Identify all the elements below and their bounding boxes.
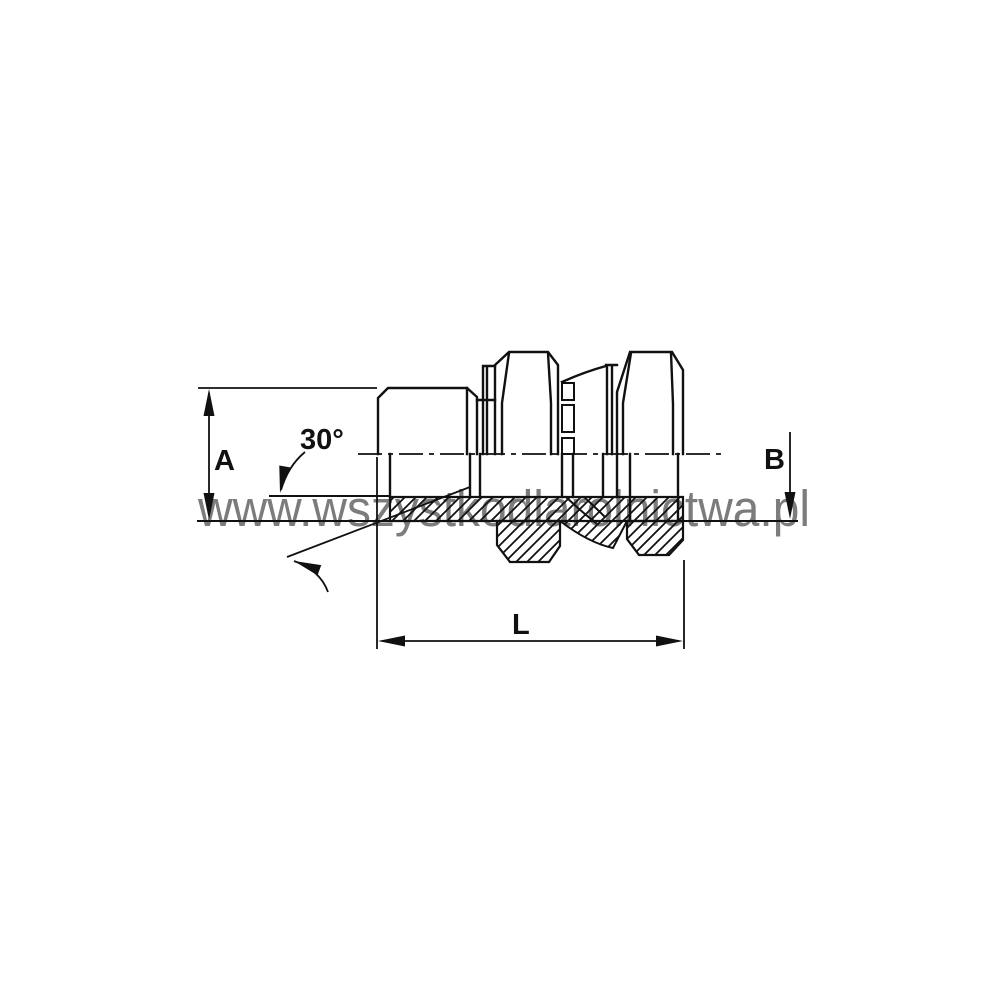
label-angle: 30° bbox=[300, 424, 344, 456]
hex-facet-left bbox=[502, 353, 509, 454]
thread-crest-rects bbox=[562, 383, 574, 454]
swivel-nut-section bbox=[627, 521, 683, 555]
thread-rect bbox=[562, 438, 574, 454]
fitting-technical-drawing: www.wszystkodlarolnictwa.pl bbox=[0, 0, 1000, 1000]
fitting-outline bbox=[378, 352, 683, 454]
label-b: B bbox=[764, 444, 785, 476]
label-l: L bbox=[512, 609, 530, 641]
arrowhead-arc bbox=[292, 556, 321, 576]
arrowhead-right bbox=[656, 636, 683, 647]
hex-nut-section bbox=[497, 521, 560, 562]
swivel-face-lines bbox=[606, 365, 617, 454]
thread-rect bbox=[562, 405, 574, 432]
thread-rect bbox=[562, 383, 574, 400]
section-view bbox=[390, 454, 683, 562]
drawing-canvas: www.wszystkodlarolnictwa.pl bbox=[0, 0, 1000, 1000]
arrowhead-left bbox=[378, 636, 405, 647]
label-a: A bbox=[214, 445, 235, 477]
swivel-facet-right bbox=[671, 353, 673, 454]
arrowhead-up bbox=[204, 389, 215, 416]
male-thread-outline bbox=[378, 388, 477, 454]
hex-facet-right bbox=[548, 353, 551, 454]
swivel-skirt-curve bbox=[562, 366, 606, 382]
collar-lines bbox=[483, 366, 495, 454]
